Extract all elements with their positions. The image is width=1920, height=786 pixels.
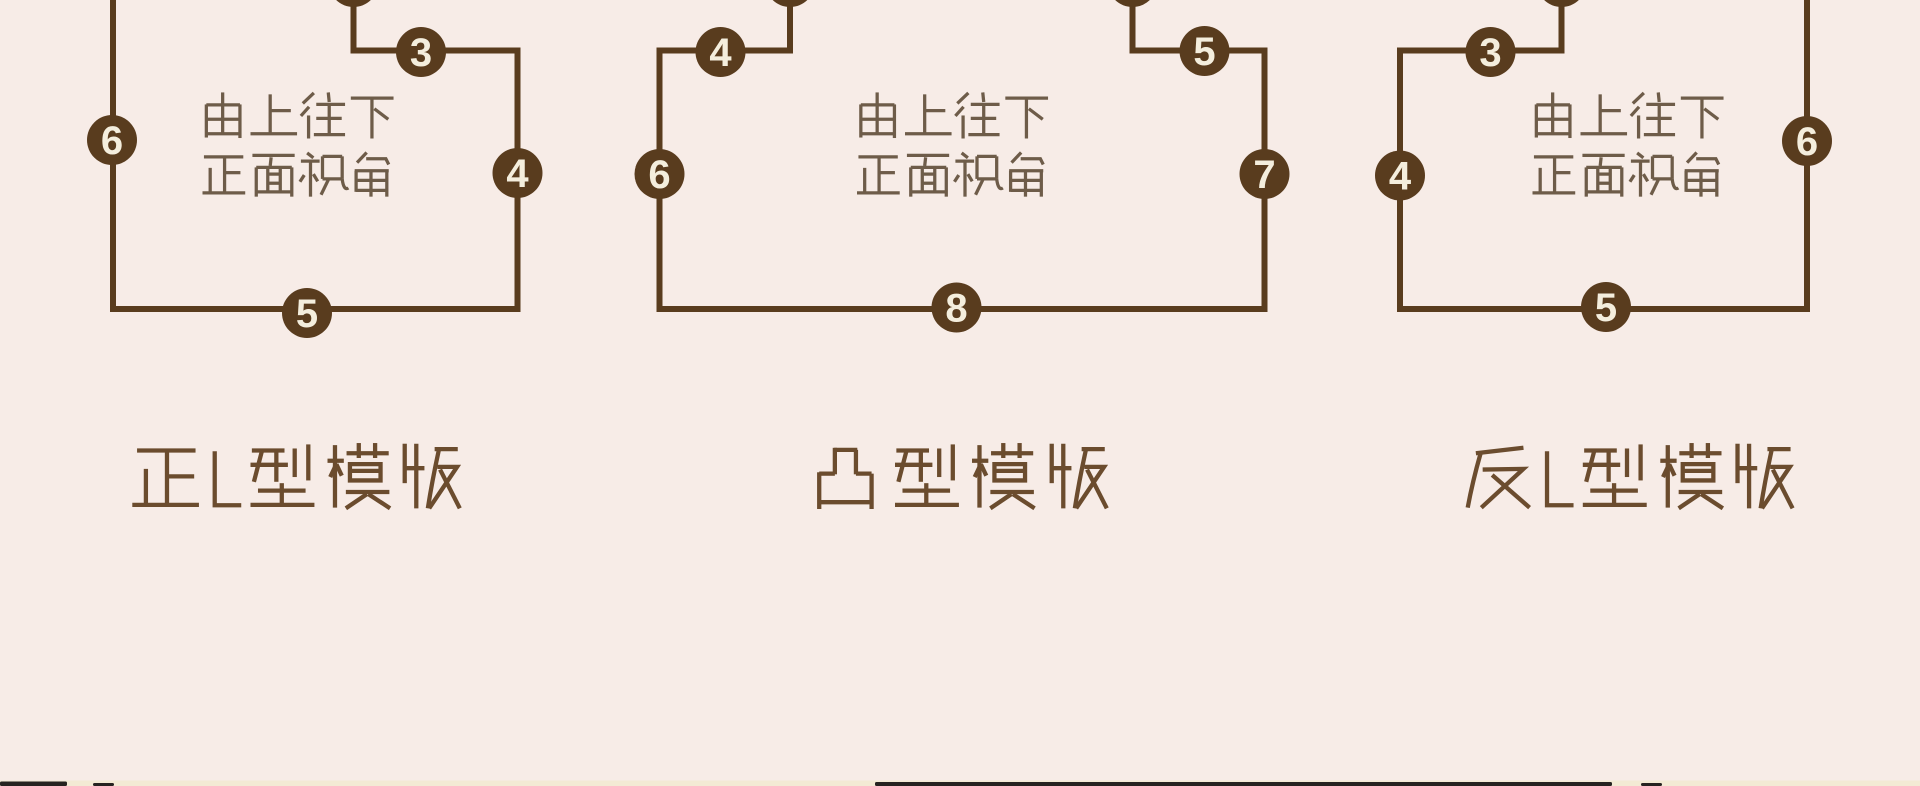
svg-text:5: 5 — [1193, 30, 1215, 74]
svg-text:3: 3 — [1479, 31, 1501, 75]
svg-text:4: 4 — [1389, 155, 1412, 199]
svg-text:4: 4 — [709, 31, 732, 75]
svg-text:7: 7 — [1253, 153, 1275, 197]
svg-text:5: 5 — [1595, 286, 1617, 330]
svg-text:6: 6 — [1796, 120, 1818, 164]
svg-text:8: 8 — [945, 287, 967, 331]
svg-text:5: 5 — [296, 292, 318, 336]
svg-text:3: 3 — [410, 31, 432, 75]
svg-text:6: 6 — [648, 153, 670, 197]
svg-text:6: 6 — [101, 119, 123, 163]
svg-text:4: 4 — [506, 152, 529, 196]
